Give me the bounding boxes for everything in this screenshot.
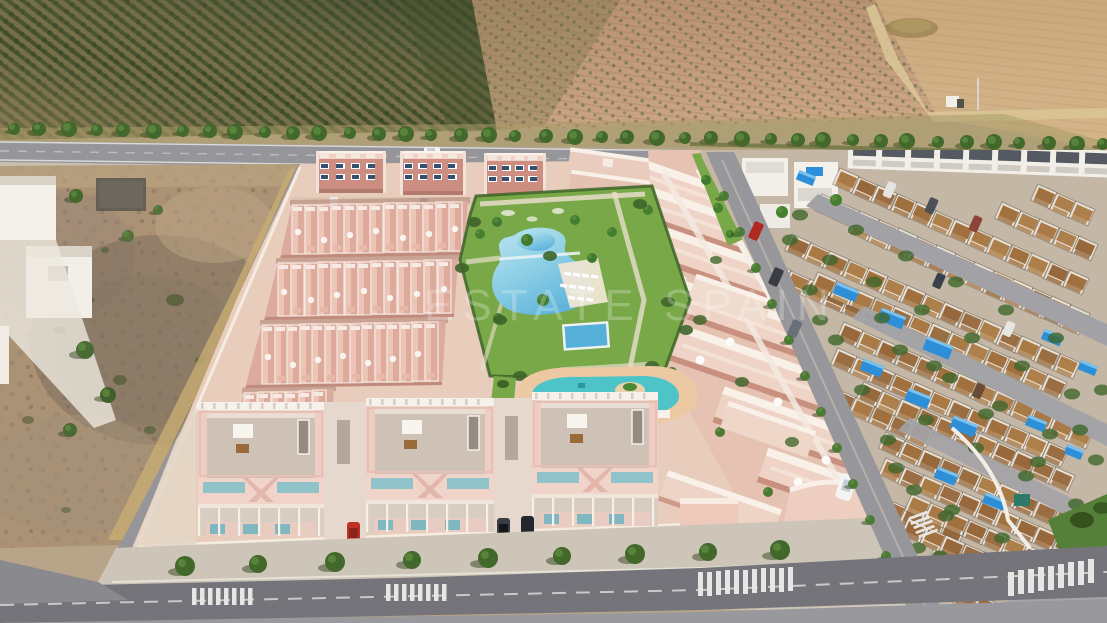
svg-text:ESTATE SPAIN: ESTATE SPAIN	[424, 281, 838, 330]
